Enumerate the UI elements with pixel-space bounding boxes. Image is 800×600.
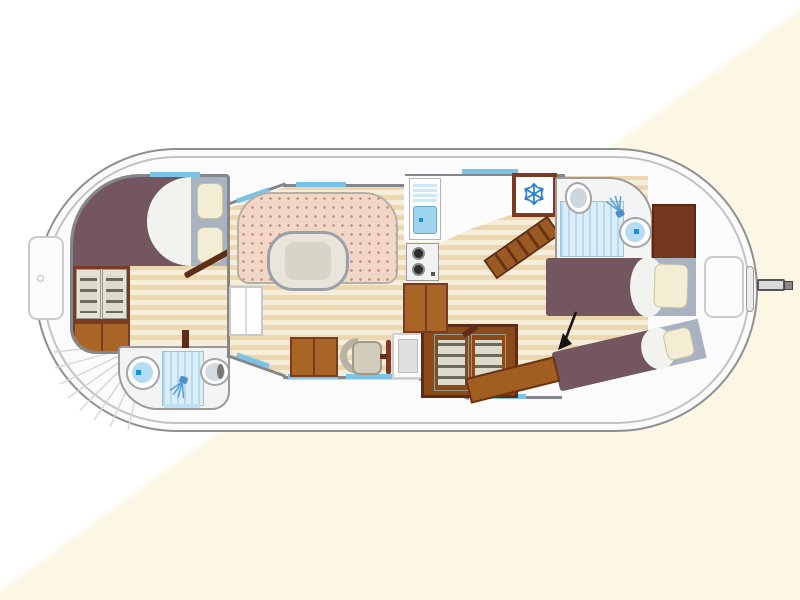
galley-cabinet — [403, 283, 448, 333]
galley-drainer — [413, 182, 437, 204]
tiller-tip — [784, 281, 793, 290]
bow-wardrobe-door-left — [76, 269, 101, 319]
bow-bathroom — [118, 346, 230, 410]
aft-bathroom — [555, 177, 653, 261]
snowflake-icon — [521, 181, 547, 207]
window-saloon-top — [296, 182, 346, 187]
direction-arrow-icon — [552, 310, 582, 354]
bow-toilet-flush — [136, 370, 141, 375]
bow-cabinet-divider — [101, 324, 103, 354]
helm-console-panel — [398, 339, 418, 373]
bow-hatch — [28, 236, 64, 320]
galley-sink-drain — [419, 218, 423, 222]
bow-wardrobe-door-right — [102, 269, 127, 319]
helm-desk-divider — [313, 339, 315, 375]
refrigerator — [512, 173, 557, 217]
saloon-cabinet-divider — [245, 288, 247, 334]
galley-sink-unit — [409, 178, 441, 240]
bow-bathroom-door — [182, 330, 189, 348]
window-bow-top — [150, 172, 200, 177]
aft-washbasin-bowl — [570, 188, 587, 208]
aft-bed-straight — [546, 258, 696, 316]
bow-washbasin-faucet — [217, 364, 224, 379]
bow-pillow-1 — [197, 183, 223, 219]
aft-toilet-flush — [634, 229, 639, 234]
stove-knob — [431, 272, 435, 276]
boat-floor-plan — [0, 0, 800, 600]
bow-hatch-ring — [37, 275, 44, 282]
helm-desk — [290, 337, 338, 377]
window-galley-top — [462, 169, 518, 174]
galley-cabinet-divider — [425, 285, 427, 331]
wall-saloon-left-upper — [227, 202, 230, 248]
bow-wardrobe — [73, 266, 130, 322]
stove-burner-1 — [412, 247, 425, 260]
stove-burner-2 — [412, 263, 425, 276]
dinette-table-inner — [285, 242, 331, 280]
helm-seat — [352, 341, 382, 375]
bow-shower-mat — [164, 404, 200, 410]
bow-cabin — [70, 174, 230, 354]
entry-wardrobe-door-left — [434, 334, 469, 391]
galley-sink-bowl — [413, 206, 437, 234]
aft-wardrobe — [652, 204, 696, 260]
tiller-bar — [757, 279, 785, 291]
helm-console — [392, 333, 424, 379]
dinette-table — [267, 231, 349, 291]
aft-bed-straight-pillow — [653, 263, 689, 308]
stern-slot — [746, 266, 754, 312]
galley-stove — [406, 243, 439, 281]
stern-locker — [704, 256, 744, 318]
steering-hub — [380, 354, 387, 359]
saloon-white-cabinet — [229, 286, 263, 336]
